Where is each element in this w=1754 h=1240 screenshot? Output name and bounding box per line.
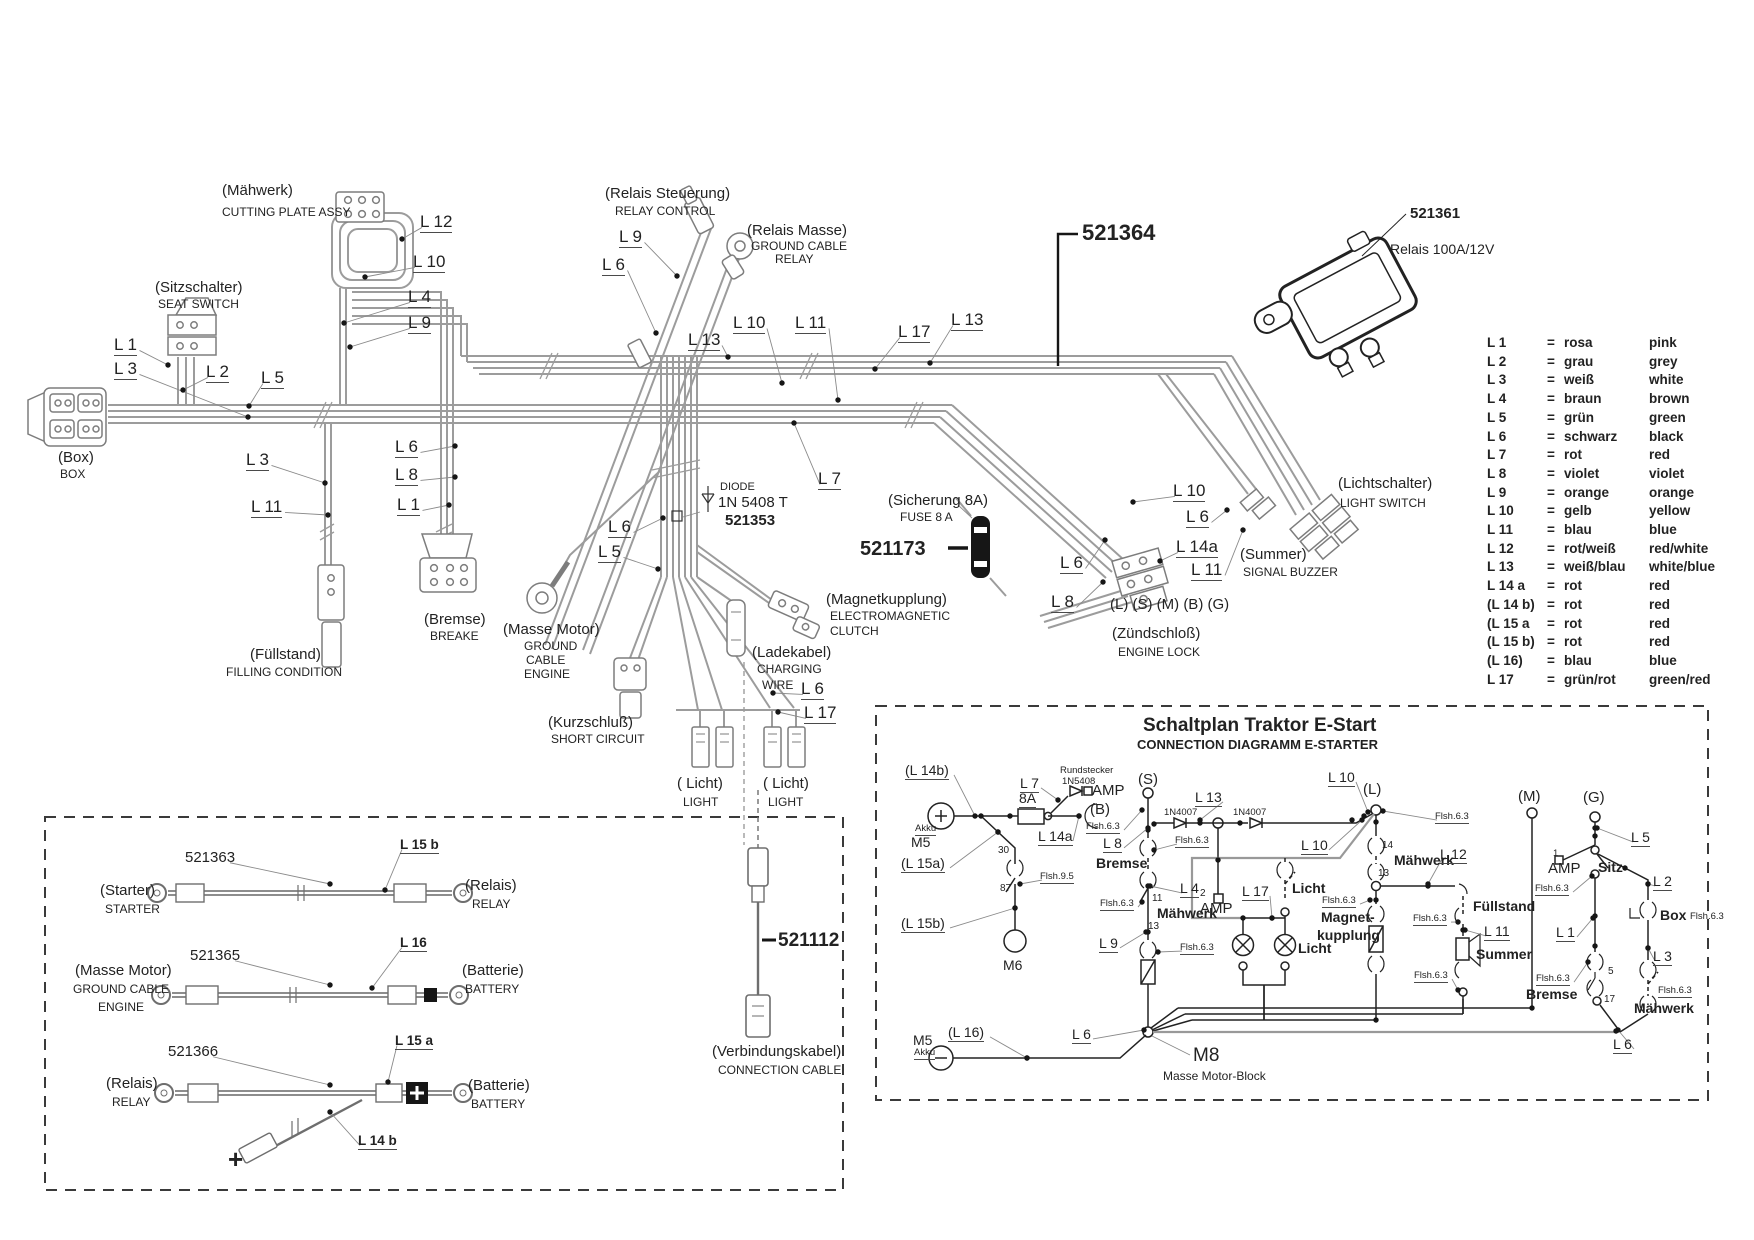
wire-label-l6-f: L 6 [1060,554,1083,574]
part-521173: 521173 [860,539,926,560]
label-fuellstand-en: FILLING CONDITION [226,666,342,678]
sch-flsh-box: Flsh.6.3 [1690,912,1724,922]
label-starter-de: (Starter) [100,883,155,899]
sch-bremse2: Bremse [1526,987,1577,1002]
sch-flsh-mw1: Flsh.6.3 [1100,899,1134,911]
lg-de: rosa [1564,334,1649,353]
sch-2: 2 [1200,889,1206,899]
legend-row-l16: (L 16)=blaublue [1487,652,1715,671]
label-masse-motor2-en1: GROUND CABLE [73,983,169,995]
legend-row-l15a: (L 15 a=rotred [1487,615,1715,634]
label-relais-100a: Relais 100A/12V [1390,242,1494,257]
part-521353: 521353 [725,513,775,529]
sch-term-l: (L) [1363,782,1381,798]
wiring-diagram-page: L 1=rosapinkL 2=graugreyL 3=weißwhiteL 4… [0,0,1754,1240]
wire-label-l14a: L 14a [1176,538,1218,558]
sch-l17: L 17 [1242,884,1269,901]
label-masse-motor2-en2: ENGINE [98,1001,144,1013]
legend-row-l4: L 4=braunbrown [1487,390,1715,409]
lg-eq: = [1547,484,1564,503]
lg-de: weiß/blau [1564,558,1649,577]
wire-label-l3-b: L 3 [246,451,269,471]
lg-en: violet [1649,465,1684,484]
wire-label-l10-b: L 10 [733,314,765,334]
lg-en: red [1649,446,1670,465]
wire-label-l10-c: L 10 [1173,482,1205,502]
lg-en: green/red [1649,671,1711,690]
label-ladekabel-en1: CHARGING [757,663,822,675]
sch-87: 87 [1000,884,1011,894]
sch-8a: 8A [1019,791,1036,808]
sch-l14a: L 14a [1038,829,1073,846]
lg-code: L 1 [1487,334,1547,353]
wire-label-l15a: L 15 a [395,1034,433,1050]
wire-label-l11-c: L 11 [1191,561,1222,581]
wire-label-l8-b: L 8 [1051,593,1074,613]
lg-code: L 13 [1487,558,1547,577]
label-masse-motor-en1: GROUND [524,640,577,652]
lg-eq: = [1547,633,1564,652]
label-lichtschalter-de: (Lichtschalter) [1338,476,1432,492]
wire-label-l6-c: L 6 [608,518,631,538]
lg-code: L 12 [1487,540,1547,559]
label-masse-motor-en3: ENGINE [524,668,570,680]
label-diode-type: 1N 5408 T [718,495,788,511]
plus-terminal-mark: + [228,1146,243,1173]
lg-en: green [1649,409,1686,428]
sch-1n4007-b: 1N4007 [1233,808,1266,818]
wire-label-l9-a: L 9 [408,314,431,334]
sch-l13: L 13 [1195,790,1222,807]
wire-label-l7: L 7 [818,470,841,490]
label-licht2-de: ( Licht) [763,776,809,792]
sch-amp2: AMP [1200,901,1233,917]
lg-de: rot [1564,615,1649,634]
legend-row-l14b: (L 14 b)=rotred [1487,596,1715,615]
wire-label-l13-a: L 13 [688,331,720,351]
label-magnetkupplung-de: (Magnetkupplung) [826,592,947,608]
label-box-de: (Box) [58,450,94,466]
legend-row-l1: L 1=rosapink [1487,334,1715,353]
wire-label-l14b: L 14 b [358,1134,397,1150]
sch-flsh-lm: Flsh.6.3 [1435,812,1469,824]
lg-eq: = [1547,428,1564,447]
lg-en: white [1649,371,1684,390]
label-batterie1-en: BATTERY [465,983,519,995]
wire-label-l4: L 4 [408,288,431,308]
legend-row-l6: L 6=schwarzblack [1487,428,1715,447]
sch-m5-plus: M5 [911,835,930,850]
sch-amp1: AMP [1092,783,1125,799]
legend-row-l10: L 10=gelbyellow [1487,502,1715,521]
lg-eq: = [1547,558,1564,577]
lg-de: rot [1564,577,1649,596]
label-summer-en: SIGNAL BUZZER [1243,566,1338,578]
lg-en: red/white [1649,540,1708,559]
wire-label-l6-e: L 6 [1186,508,1209,528]
wire-label-l16: L 16 [400,936,427,952]
wire-label-l17-a: L 17 [898,323,930,343]
wire-label-l15b: L 15 b [400,838,439,854]
lg-code: L 8 [1487,465,1547,484]
sch-l1: L 1 [1556,925,1575,942]
sch-13a: 13 [1148,922,1159,932]
sch-l15b: (L 15b) [901,916,945,933]
label-relais-masse-en1: GROUND CABLE [751,240,847,252]
lg-code: L 2 [1487,353,1547,372]
label-ladekabel-en2: WIRE [762,679,793,691]
sch-l2: L 2 [1653,874,1672,891]
label-masse-motor-de: (Masse Motor) [503,622,600,638]
sch-flsh-sm: Flsh.6.3 [1414,971,1448,983]
label-batterie2-de: (Batterie) [468,1078,530,1094]
sch-flsh-b: Flsh.6.3 [1086,822,1120,834]
sch-l9: L 9 [1099,936,1118,953]
lg-de: violet [1564,465,1649,484]
lg-code: L 7 [1487,446,1547,465]
label-box-en: BOX [60,468,85,480]
sch-5: 5 [1608,967,1614,977]
label-magnetkupplung-en1: ELECTROMAGNETIC [830,610,950,622]
lg-de: schwarz [1564,428,1649,447]
legend-row-l3: L 3=weißwhite [1487,371,1715,390]
lg-eq: = [1547,502,1564,521]
legend-row-l2: L 2=graugrey [1487,353,1715,372]
label-bremse-en: BREAKE [430,630,479,642]
label-relais-steuerung-de: (Relais Steuerung) [605,186,730,202]
sch-1n5408: 1N5408 [1062,777,1095,787]
sch-flsh-mk: Flsh.6.3 [1322,896,1356,908]
lg-en: blue [1649,652,1677,671]
lg-code: L 5 [1487,409,1547,428]
sch-14: 14 [1382,841,1393,851]
sch-m8-name: Masse Motor-Block [1163,1070,1266,1082]
sch-1n4007-a: 1N4007 [1164,808,1197,818]
schematic-title-en: CONNECTION DIAGRAMM E-STARTER [1137,738,1378,752]
lg-eq: = [1547,446,1564,465]
lg-code: (L 15 a [1487,615,1547,634]
lg-eq: = [1547,540,1564,559]
lg-de: orange [1564,484,1649,503]
wire-color-legend: L 1=rosapinkL 2=graugreyL 3=weißwhiteL 4… [1487,334,1715,689]
schematic-title-de: Schaltplan Traktor E-Start [1143,716,1376,736]
legend-row-l15b: (L 15 b)=rotred [1487,633,1715,652]
label-batterie1-de: (Batterie) [462,963,524,979]
label-diode: DIODE [720,482,755,493]
label-zuendschloss-de: (Zündschloß) [1112,626,1200,642]
label-maehwerk-de: (Mähwerk) [222,183,293,199]
part-521365: 521365 [190,948,240,964]
sch-box: Box [1660,908,1686,923]
label-bremse-de: (Bremse) [424,612,486,628]
wire-label-l8-a: L 8 [395,466,418,486]
sch-flsh-bremse: Flsh.6.3 [1175,836,1209,848]
sch-flsh-mw3: Flsh.6.3 [1658,986,1692,998]
sch-term-m: (M) [1518,789,1541,805]
label-relais2-en: RELAY [112,1096,150,1108]
lg-eq: = [1547,371,1564,390]
lg-code: L 4 [1487,390,1547,409]
lg-en: grey [1649,353,1678,372]
part-521112: 521112 [778,931,839,951]
lg-de: weiß [1564,371,1649,390]
label-sicherung-en: FUSE 8 A [900,511,953,523]
legend-row-l5: L 5=grüngreen [1487,409,1715,428]
sch-term-b: (B) [1090,802,1110,818]
sch-l16: (L 16) [948,1025,984,1042]
label-licht2-en: LIGHT [768,796,803,808]
lg-de: grün [1564,409,1649,428]
wire-label-l3-a: L 3 [114,360,137,380]
lg-de: blau [1564,652,1649,671]
sch-l4: L 4 [1180,881,1199,898]
lg-eq: = [1547,577,1564,596]
label-verbindungskabel-en: CONNECTION CABLE [718,1064,841,1076]
lg-eq: = [1547,652,1564,671]
lg-en: blue [1649,521,1677,540]
lg-eq: = [1547,409,1564,428]
lg-code: (L 16) [1487,652,1547,671]
label-summer-de: (Summer) [1240,547,1307,563]
sch-l15a: (L 15a) [901,856,945,873]
sch-flsh-br2: Flsh.6.3 [1536,974,1570,986]
sch-1: 1 [1553,849,1558,859]
lg-en: white/blue [1649,558,1715,577]
sch-l11: L 11 [1484,924,1510,941]
wire-label-l5-a: L 5 [261,369,284,389]
sch-licht-switch: Licht [1292,881,1325,896]
lg-eq: = [1547,596,1564,615]
sch-30: 30 [998,846,1009,856]
label-magnetkupplung-en2: CLUTCH [830,625,879,637]
sch-11: 11 [1152,894,1162,904]
sch-term-g: (G) [1583,790,1605,806]
lg-eq: = [1547,390,1564,409]
sch-term-s: (S) [1138,772,1158,788]
sch-l8: L 8 [1103,836,1122,853]
wire-label-l2: L 2 [206,363,229,383]
label-relais-masse-en2: RELAY [775,253,813,265]
label-zuendschloss-en: ENGINE LOCK [1118,646,1200,658]
label-kurzschluss-de: (Kurzschluß) [548,715,633,731]
lg-code: L 14 a [1487,577,1547,596]
label-masse-motor2-de: (Masse Motor) [75,963,172,979]
label-relais-steuerung-en: RELAY CONTROL [615,205,715,217]
sch-flsh-sitz: Flsh.6.3 [1535,884,1569,896]
label-zuendschloss-terminals: (L) (S) (M) (B) (G) [1110,597,1229,613]
sch-sitz: Sitz [1598,860,1623,875]
label-sitzschalter-en: SEAT SWITCH [158,298,239,310]
lg-de: grau [1564,353,1649,372]
sch-17: 17 [1604,995,1615,1005]
lg-eq: = [1547,521,1564,540]
lg-code: L 11 [1487,521,1547,540]
wire-label-l9-b: L 9 [619,228,642,248]
lg-en: brown [1649,390,1690,409]
sch-l12: L 12 [1440,847,1467,864]
sch-flsh-fs: Flsh.6.3 [1413,914,1447,926]
sch-flsh-l9: Flsh.6.3 [1180,943,1214,955]
lg-de: blau [1564,521,1649,540]
legend-row-l9: L 9=orangeorange [1487,484,1715,503]
sch-rundstecker: Rundstecker [1060,766,1113,776]
sch-l10-up: L 10 [1328,770,1355,787]
lg-de: grün/rot [1564,671,1649,690]
legend-row-l14a: L 14 a=rotred [1487,577,1715,596]
lg-en: red [1649,615,1670,634]
lg-de: braun [1564,390,1649,409]
lg-en: red [1649,577,1670,596]
label-licht1-de: ( Licht) [677,776,723,792]
label-relais1-en: RELAY [472,898,510,910]
sch-l10-low: L 10 [1301,838,1328,855]
sch-13b: 13 [1378,869,1389,879]
sch-l6-left: L 6 [1072,1027,1091,1044]
wire-label-l1-b: L 1 [397,496,420,516]
sch-m5-minus: M5 [913,1033,932,1048]
label-verbindungskabel-de: (Verbindungskabel) [712,1044,841,1060]
lg-code: L 17 [1487,671,1547,690]
sch-summer: Summer [1476,947,1532,962]
lg-de: gelb [1564,502,1649,521]
label-masse-motor-en2: CABLE [526,654,565,666]
label-lichtschalter-en: LIGHT SWITCH [1340,497,1426,509]
label-relais-masse-de: (Relais Masse) [747,223,847,239]
lg-de: rot [1564,633,1649,652]
lg-de: rot [1564,596,1649,615]
wire-label-l13-b: L 13 [951,311,983,331]
legend-row-l13: L 13=weiß/blauwhite/blue [1487,558,1715,577]
wire-label-l6-d: L 6 [801,680,824,700]
lg-en: red [1649,633,1670,652]
label-sicherung-de: (Sicherung 8A) [888,493,988,509]
lg-eq: = [1547,353,1564,372]
label-fuellstand-de: (Füllstand) [250,647,321,663]
legend-row-l7: L 7=rotred [1487,446,1715,465]
lg-code: (L 15 b) [1487,633,1547,652]
label-sitzschalter-de: (Sitzschalter) [155,280,243,296]
label-starter-en: STARTER [105,903,160,915]
legend-row-l11: L 11=blaublue [1487,521,1715,540]
sch-flsh95: Flsh.9.5 [1040,872,1074,884]
wire-label-l6-b: L 6 [395,438,418,458]
sch-l5: L 5 [1631,830,1650,847]
part-521361: 521361 [1410,206,1460,222]
legend-row-l17: L 17=grün/rotgreen/red [1487,671,1715,690]
label-batterie2-en: BATTERY [471,1098,525,1110]
wire-label-l10-a: L 10 [413,253,445,273]
label-maehwerk-en: CUTTING PLATE ASSY [222,206,350,218]
lg-code: L 9 [1487,484,1547,503]
part-521364: 521364 [1082,222,1155,245]
wire-label-l1-a: L 1 [114,336,137,356]
part-521366: 521366 [168,1044,218,1060]
wire-label-l11-a: L 11 [795,314,826,334]
lg-code: L 6 [1487,428,1547,447]
lg-code: L 10 [1487,502,1547,521]
sch-l3: L 3 [1653,949,1672,966]
label-licht1-en: LIGHT [683,796,718,808]
sch-licht-lamp: Licht [1298,941,1331,956]
wire-label-l6-a: L 6 [602,256,625,276]
lg-en: red [1649,596,1670,615]
lg-eq: = [1547,615,1564,634]
lg-eq: = [1547,334,1564,353]
lg-code: (L 14 b) [1487,596,1547,615]
lg-de: rot/weiß [1564,540,1649,559]
lg-en: black [1649,428,1684,447]
sch-l14b: (L 14b) [905,763,949,780]
label-relais1-de: (Relais) [465,878,517,894]
legend-row-l8: L 8=violetviolet [1487,465,1715,484]
wire-label-l5-b: L 5 [598,543,621,563]
wire-label-l11-b: L 11 [251,498,282,518]
wire-label-l12: L 12 [420,213,452,233]
lg-code: L 3 [1487,371,1547,390]
legend-row-l12: L 12=rot/weißred/white [1487,540,1715,559]
sch-maehwerk3: Mähwerk [1634,1001,1694,1016]
sch-m8: M8 [1193,1046,1219,1066]
sch-akku2: Akku [914,1048,935,1060]
label-relais2-de: (Relais) [106,1076,158,1092]
lg-eq: = [1547,465,1564,484]
sch-magnet1: Magnet- [1321,910,1375,925]
lg-en: orange [1649,484,1694,503]
lg-en: pink [1649,334,1677,353]
lg-de: rot [1564,446,1649,465]
label-kurzschluss-en: SHORT CIRCUIT [551,733,645,745]
label-ladekabel-de: (Ladekabel) [752,645,831,661]
sch-l6-right: L 6 [1613,1037,1632,1054]
part-521363: 521363 [185,850,235,866]
lg-eq: = [1547,671,1564,690]
sch-m6: M6 [1003,958,1022,973]
sch-fuellstand: Füllstand [1473,899,1535,914]
sch-amp3: AMP [1548,861,1581,877]
lg-en: yellow [1649,502,1690,521]
wire-label-l17-b: L 17 [804,704,836,724]
sch-bremse1: Bremse [1096,856,1147,871]
